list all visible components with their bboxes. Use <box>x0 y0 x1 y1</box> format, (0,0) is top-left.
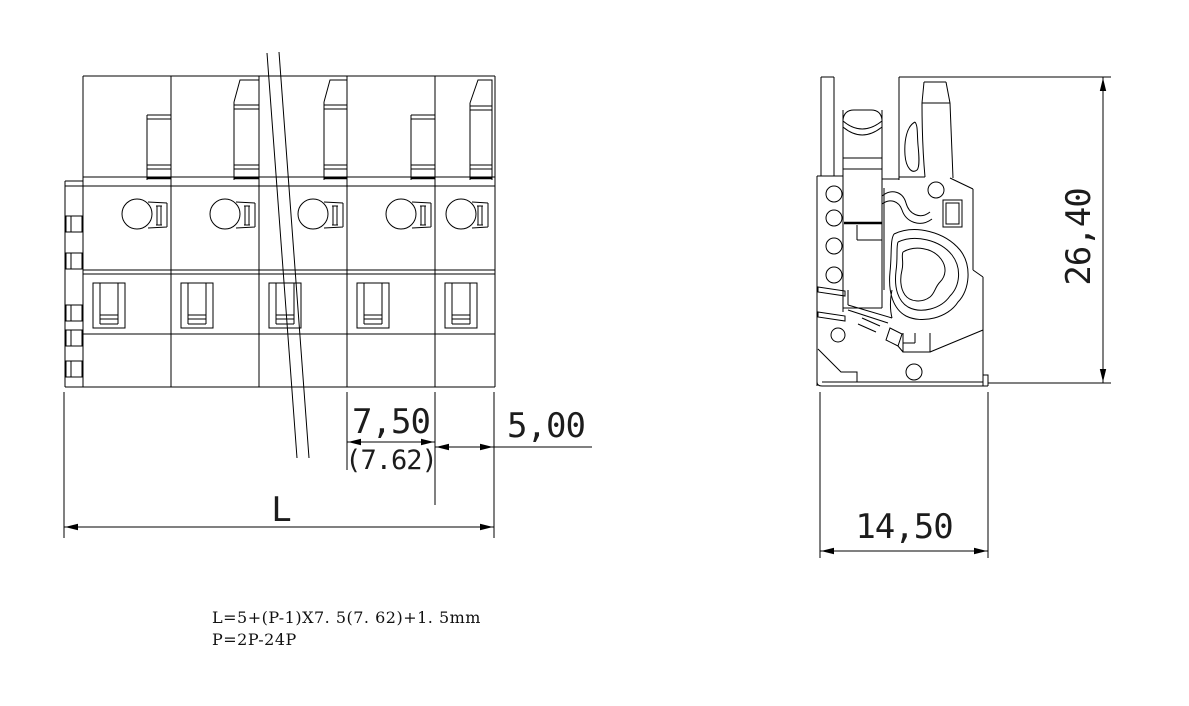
spring-clamp <box>882 192 968 320</box>
dim-height: 26,40 <box>899 77 1111 383</box>
dim-end-value: 5,00 <box>507 406 585 446</box>
side-hole <box>928 182 944 198</box>
side-hole <box>831 328 845 342</box>
side-hole <box>906 364 922 380</box>
dim-depth: 14,50 <box>820 392 988 558</box>
drawing-sheet: 7,50 (7.62) 5,00 L 26,40 14,50 L=5+(P-1)… <box>0 0 1189 706</box>
side-hole <box>826 186 842 202</box>
screw-circle <box>386 199 416 229</box>
screw-circle <box>298 199 328 229</box>
dim-height-value: 26,40 <box>1059 188 1099 285</box>
side-screw-shaft <box>843 110 884 312</box>
side-holes <box>826 182 944 380</box>
dim-pitch-value: 7,50 <box>352 402 430 442</box>
side-view <box>817 77 988 386</box>
screw-heads <box>122 199 488 229</box>
screw-circle <box>446 199 476 229</box>
side-hole <box>826 238 842 254</box>
side-lever <box>905 82 953 178</box>
dim-end-width: 5,00 <box>435 392 592 538</box>
dim-depth-value: 14,50 <box>855 507 952 547</box>
screw-circle <box>122 199 152 229</box>
note-poles-range: P=2P-24P <box>212 630 297 649</box>
mount-rail-tabs <box>66 216 82 377</box>
screw-clamp-brackets <box>148 202 488 228</box>
front-view <box>65 52 495 458</box>
note-length-formula: L=5+(P-1)X7. 5(7. 62)+1. 5mm <box>212 608 481 627</box>
lever-short-1 <box>147 115 171 180</box>
dim-pitch: 7,50 (7.62) <box>345 392 437 505</box>
screw-circle <box>210 199 240 229</box>
break-lines <box>267 52 309 458</box>
side-hole <box>826 267 842 283</box>
lever-tall-3 <box>324 80 347 180</box>
dim-pitch-alt-value: (7.62) <box>345 445 437 476</box>
notes-block: L=5+(P-1)X7. 5(7. 62)+1. 5mm P=2P-24P <box>212 608 481 649</box>
side-pocket-rect <box>943 200 962 227</box>
technical-drawing: 7,50 (7.62) 5,00 L 26,40 14,50 L=5+(P-1)… <box>0 0 1189 706</box>
lever-tall-2 <box>234 80 259 180</box>
side-hole <box>826 210 842 226</box>
dim-length-value: L <box>271 490 290 530</box>
lever-short-4 <box>411 115 435 180</box>
lever-tall-5 <box>470 80 492 180</box>
